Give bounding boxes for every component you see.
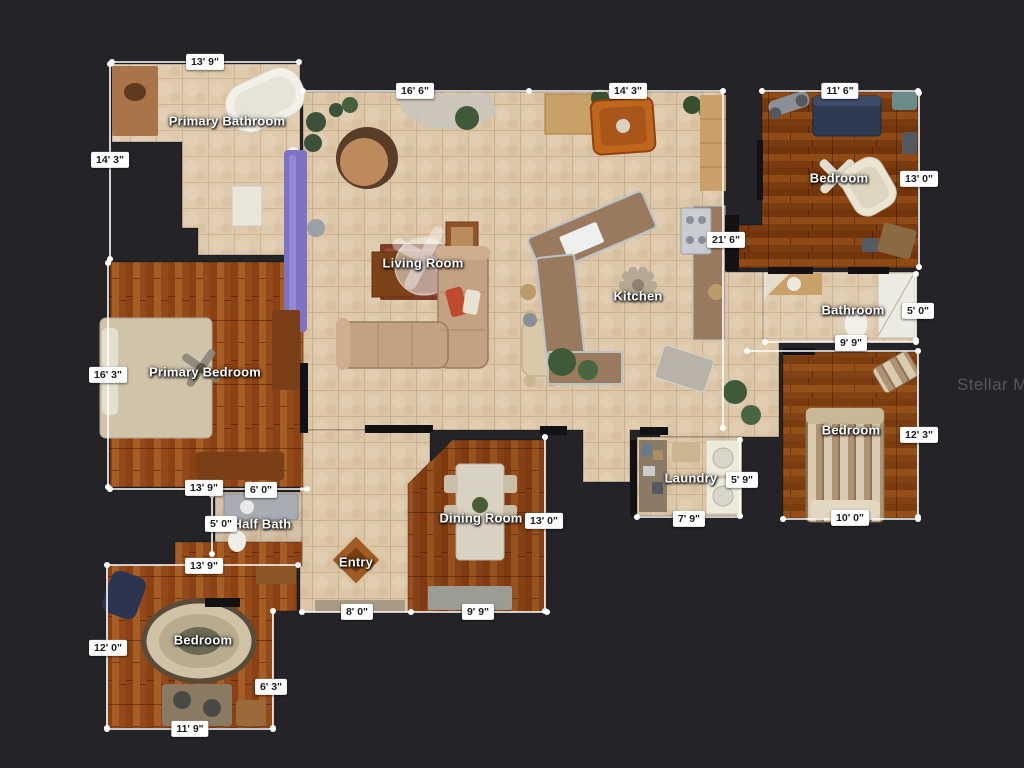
dresser [256,566,296,584]
toilet-e [844,310,868,338]
buffet [428,586,512,610]
wardrobe [272,310,300,390]
bedroom-bench [196,452,284,480]
desk [162,684,232,726]
stove [681,208,711,254]
shower [232,186,262,226]
entry-console [315,600,405,612]
floor-plan-canvas: Primary BathroomLiving RoomKitchenBedroo… [0,0,1024,768]
kitchen-table [590,97,656,155]
half-bath-toilet [228,530,246,552]
floor-plan-drawing [0,0,1024,768]
watermark: Stellar MLS [957,375,1024,395]
half-bath-counter [224,494,298,520]
shower-stall [878,273,915,338]
kitchen-hutch [545,94,595,134]
